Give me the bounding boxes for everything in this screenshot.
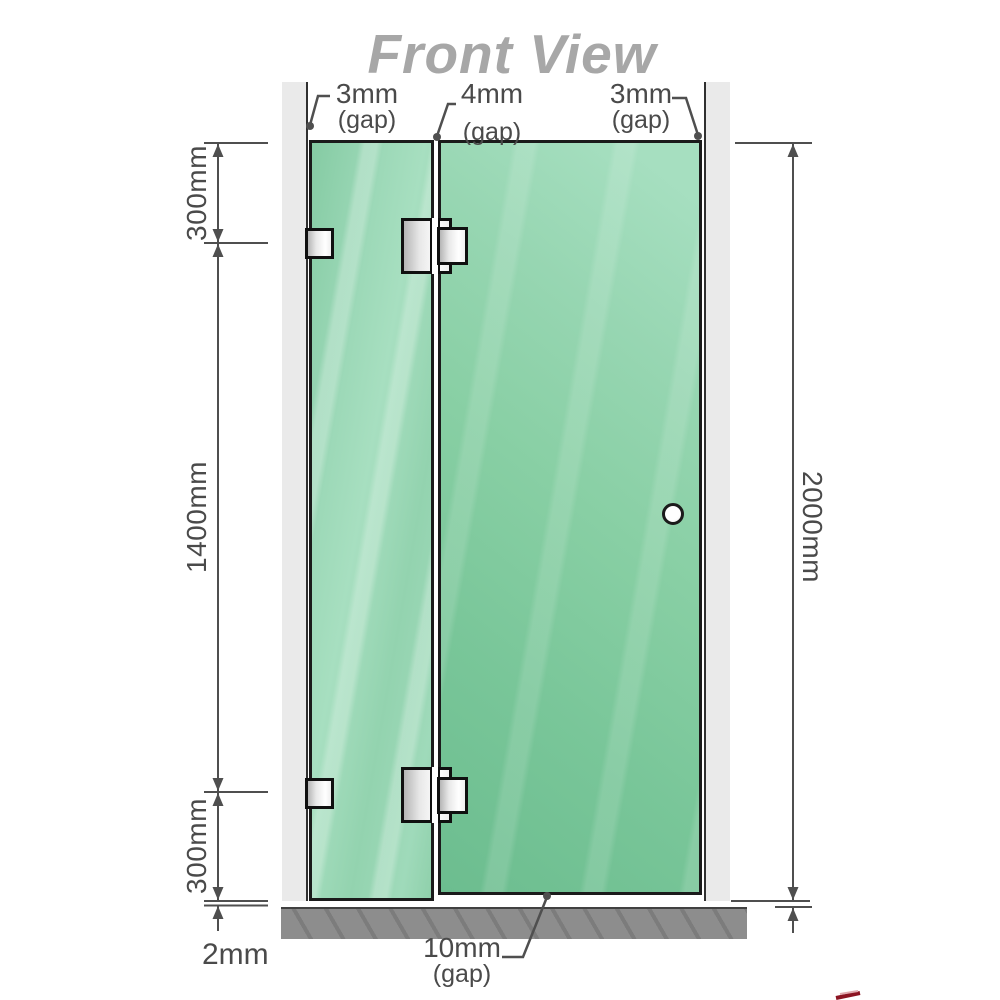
right-wall: [704, 82, 730, 901]
dim-label-floor-2mm: 2mm: [202, 938, 269, 972]
page-title: Front View: [367, 22, 656, 86]
floor: [281, 907, 747, 939]
gap-left-caption: (gap): [338, 108, 396, 133]
gap-bottom-caption: (gap): [433, 962, 491, 987]
door-knob: [662, 503, 684, 525]
watermark-mark: [836, 991, 860, 998]
gap-right-caption: (gap): [612, 108, 670, 133]
gap-label-right: 3mm (gap): [610, 80, 672, 133]
gap-bottom-value: 10mm: [423, 934, 501, 962]
front-view-diagram: Front View: [0, 0, 1000, 1000]
left-dimension-line: [204, 143, 268, 931]
hinge-top-clamp: [437, 227, 468, 265]
gap-left-value: 3mm: [336, 80, 398, 108]
hinge-bottom-clamp: [437, 777, 468, 814]
gap-label-left: 3mm (gap): [336, 80, 398, 133]
gap-right-value: 3mm: [610, 80, 672, 108]
gap-middle-value: 4mm: [461, 80, 523, 108]
wall-bracket-bottom: [305, 778, 334, 809]
gap-middle-caption: (gap): [463, 120, 521, 145]
wall-bracket-top: [305, 228, 334, 259]
gap-label-middle: 4mm (gap): [461, 80, 523, 145]
gap-label-bottom: 10mm (gap): [423, 934, 501, 987]
